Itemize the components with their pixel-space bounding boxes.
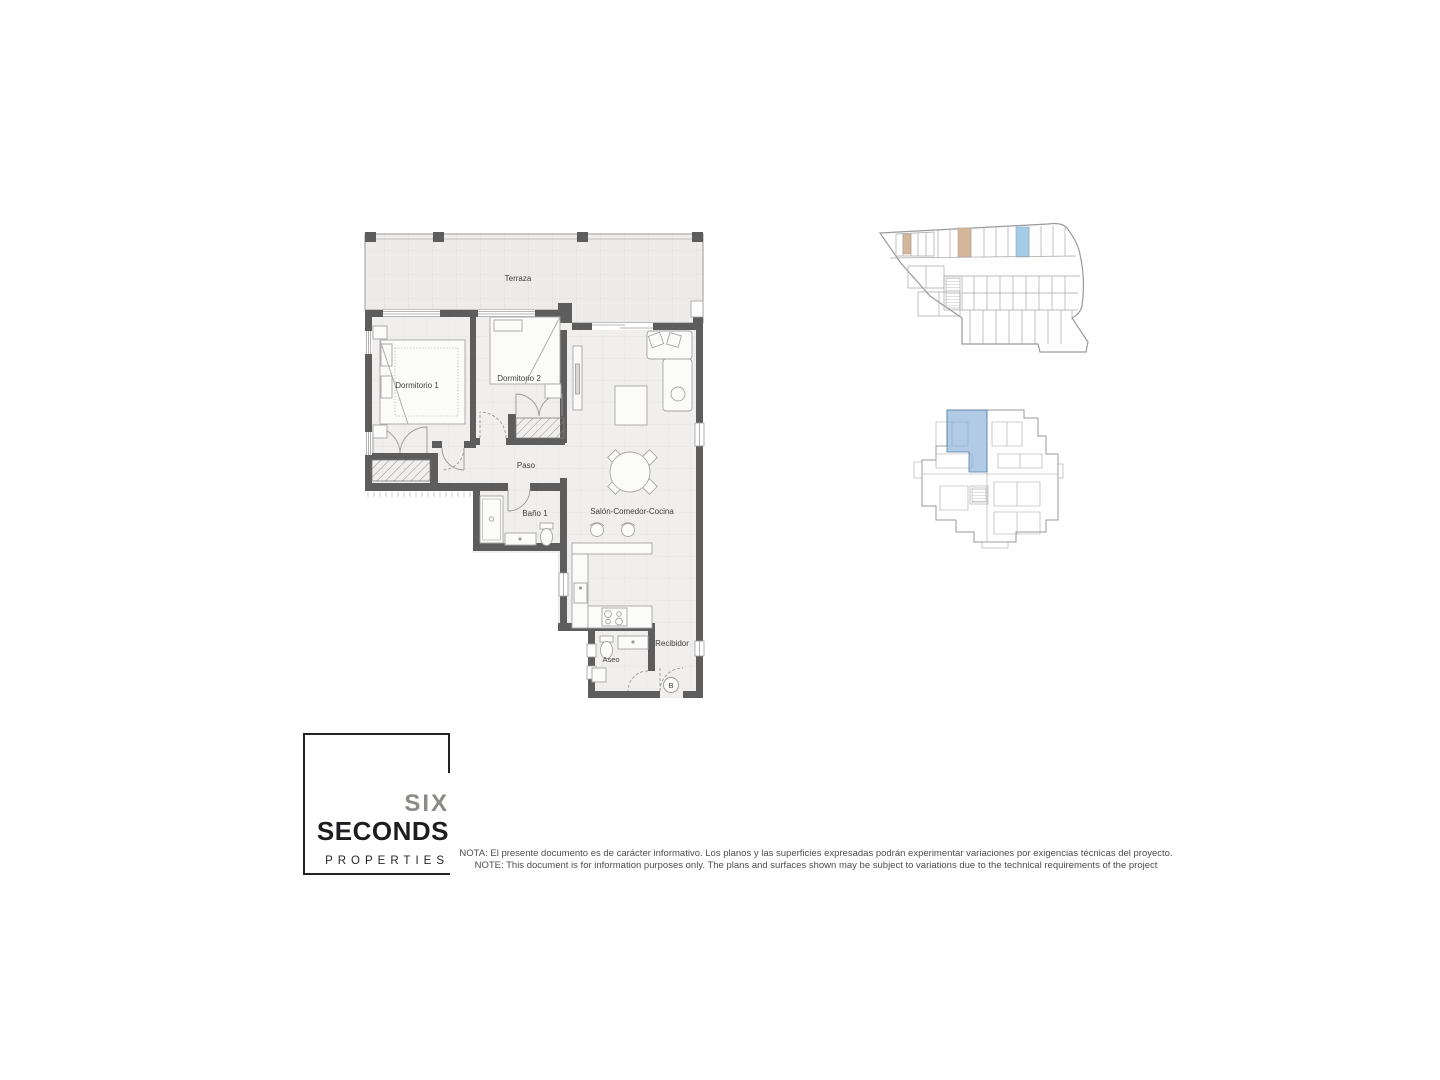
logo-word-seconds: SECONDS [317, 818, 449, 844]
tv-unit [573, 346, 582, 410]
logo-border [303, 873, 450, 875]
room-label-paso: Paso [517, 461, 536, 470]
highlight-storage [958, 228, 971, 257]
coffee-table [615, 386, 647, 425]
disclaimer: NOTA: El presente documento es de caráct… [430, 848, 1202, 872]
highlight-parking [1016, 227, 1029, 257]
logo-border [303, 733, 450, 735]
entrance-marker-letter: B [668, 681, 673, 690]
garage-stair-core [946, 278, 960, 308]
room-label-terraza: Terraza [505, 274, 532, 283]
wardrobe-dorm1 [372, 460, 430, 481]
logo-word-six: SIX [317, 792, 449, 816]
window [559, 573, 568, 596]
dining-table [608, 450, 658, 495]
dimension-ticks [368, 492, 470, 497]
window [365, 331, 372, 354]
room-label-recibidor: Recibidor [655, 639, 689, 648]
window [695, 423, 704, 446]
pilaster [691, 301, 703, 317]
highlight-storage-small [903, 234, 911, 254]
window [695, 641, 704, 656]
logo-border [448, 733, 450, 773]
column [692, 232, 703, 242]
room-label-dormitorio1: Dormitorio 1 [395, 381, 439, 390]
entrance-marker: B [664, 678, 679, 693]
column [577, 232, 588, 242]
disclaimer-line-en: NOTE: This document is for information p… [430, 860, 1202, 872]
sliding-door [592, 323, 653, 330]
terrace-floor [365, 234, 703, 323]
building-outline [922, 410, 1058, 542]
logo-border [303, 733, 305, 875]
window [365, 432, 372, 455]
floor-stair-core [972, 488, 986, 502]
room-label-dormitorio2: Dormitorio 2 [497, 374, 541, 383]
key-plan-floor [912, 402, 1064, 550]
room-label-salon: Salón-Comedor-Cocina [590, 507, 674, 516]
room-label-bano1: Baño 1 [522, 509, 548, 518]
column [365, 232, 376, 242]
key-plan-garage [874, 218, 1096, 360]
window [478, 310, 535, 317]
main-floor-plan: Terraza Dormitorio 1 Dormitorio 2 Paso B… [360, 226, 710, 702]
room-label-aseo: Aseo [602, 655, 619, 664]
company-logo: SIX SECONDS PROPERTIES [303, 733, 450, 875]
disclaimer-line-es: NOTA: El presente documento es de caráct… [430, 848, 1202, 860]
column [433, 232, 444, 242]
wardrobe-dorm2 [516, 418, 564, 438]
window [383, 310, 440, 317]
